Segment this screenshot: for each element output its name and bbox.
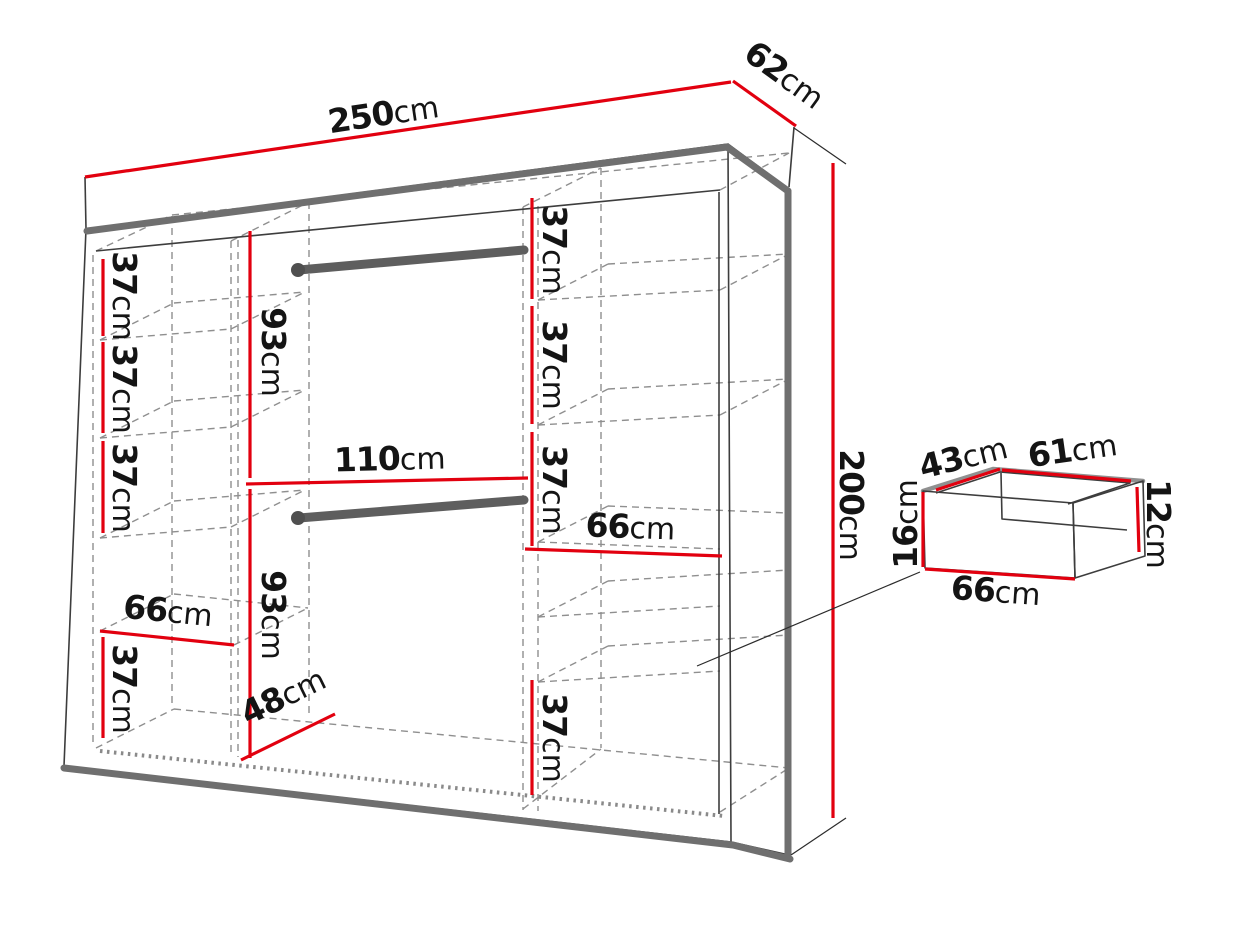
drawer-front-height-label: 16cm <box>886 479 925 569</box>
left-shelf-width-label: 66cm <box>122 587 215 634</box>
wardrobe-structure <box>64 127 794 859</box>
middle-upper-height-label: 93cm <box>254 307 293 397</box>
drawer-inner-width-line <box>1002 470 1131 481</box>
height-dimension-label: 200cm <box>832 449 871 561</box>
right-compartment3-label: 37cm <box>535 445 574 535</box>
wardrobe-dimensions: 250cm 62cm 200cm 37cm 37cm 37cm 66cm 37c… <box>85 33 871 855</box>
right-compartment2-label: 37cm <box>535 320 574 410</box>
middle-width-line <box>246 478 528 484</box>
height-extension-line-top <box>794 128 846 164</box>
middle-lower-height-label: 93cm <box>254 570 293 660</box>
left-compartment3-label: 37cm <box>105 443 144 533</box>
top-panel-left-edge <box>85 177 86 229</box>
front-frame-outline <box>64 144 731 842</box>
left-compartment2-label: 37cm <box>105 344 144 434</box>
right-shelf-width-label: 66cm <box>585 505 676 547</box>
drawer-front-face <box>923 491 1075 578</box>
right-shelf-width-line <box>525 549 722 556</box>
wardrobe-drawing: 250cm 62cm 200cm 37cm 37cm 37cm 66cm 37c… <box>64 33 871 859</box>
top-right-edge <box>727 147 788 191</box>
height-extension-line-bottom <box>791 818 846 855</box>
right-side-panel-outline <box>728 144 789 855</box>
drawer-right-face <box>1073 481 1145 578</box>
middle-width-label: 110cm <box>333 438 446 480</box>
drawer-structure <box>923 469 1145 578</box>
depth-dimension-label: 62cm <box>737 33 832 117</box>
drawer-dimensions: 43cm 61cm 16cm 12cm 66cm <box>886 424 1178 613</box>
left-compartment1-label: 37cm <box>105 251 144 341</box>
left-shelf-width-line <box>100 631 234 645</box>
right-compartment1-label: 37cm <box>535 205 574 295</box>
drawer-back-height-label: 12cm <box>1139 479 1178 569</box>
top-front-edge <box>87 147 727 231</box>
hanging-rod-lower <box>291 500 524 525</box>
interior-dashed-structure <box>93 153 789 812</box>
diagram-canvas: 250cm 62cm 200cm 37cm 37cm 37cm 66cm 37c… <box>0 0 1235 926</box>
right-bottom-compartment-label: 37cm <box>535 693 574 783</box>
left-bottom-compartment-label: 37cm <box>105 644 144 734</box>
furniture-dimension-diagram: 250cm 62cm 200cm 37cm 37cm 37cm 66cm 37c… <box>0 0 1235 926</box>
drawer-back-height-line <box>1137 487 1139 552</box>
hanging-rod-upper <box>291 250 524 277</box>
top-right-corner-edge <box>789 127 794 187</box>
bottom-base-edge <box>64 768 790 859</box>
drawer-inner-width-label: 61cm <box>1025 424 1119 475</box>
drawer-detail: 43cm 61cm 16cm 12cm 66cm <box>886 424 1178 613</box>
width-dimension-label: 250cm <box>325 86 441 141</box>
